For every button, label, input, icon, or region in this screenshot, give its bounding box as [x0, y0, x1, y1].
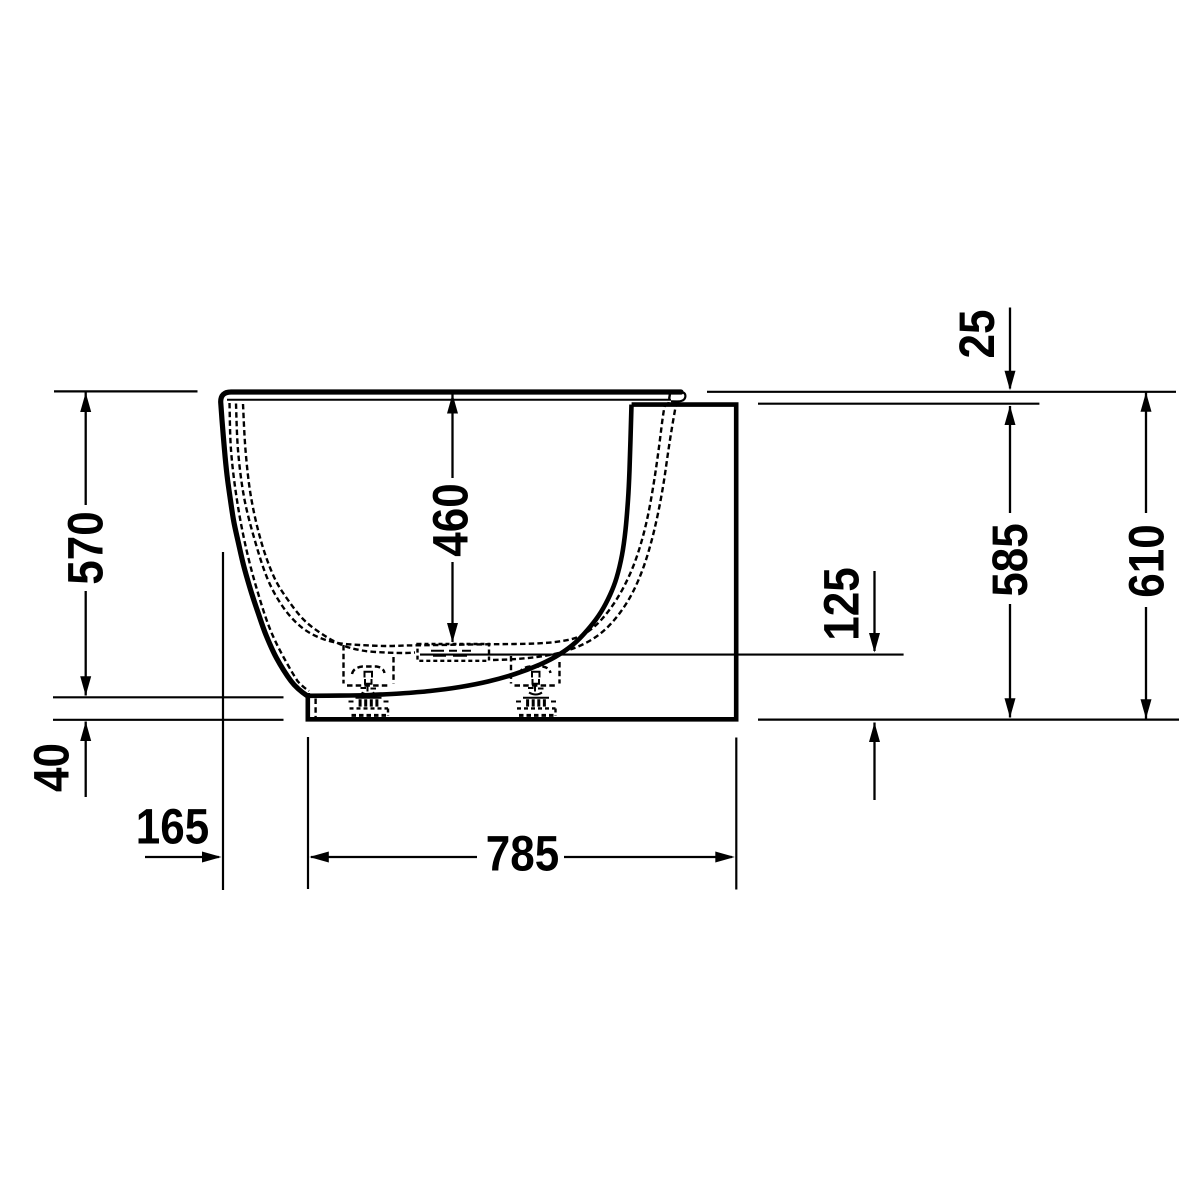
svg-text:165: 165	[136, 799, 209, 855]
svg-text:610: 610	[1119, 524, 1175, 597]
svg-text:785: 785	[486, 826, 559, 882]
svg-text:125: 125	[814, 567, 870, 640]
svg-text:25: 25	[949, 310, 1005, 359]
svg-text:460: 460	[423, 483, 479, 556]
svg-text:585: 585	[982, 523, 1038, 596]
svg-text:570: 570	[58, 511, 114, 584]
svg-text:40: 40	[24, 743, 80, 792]
